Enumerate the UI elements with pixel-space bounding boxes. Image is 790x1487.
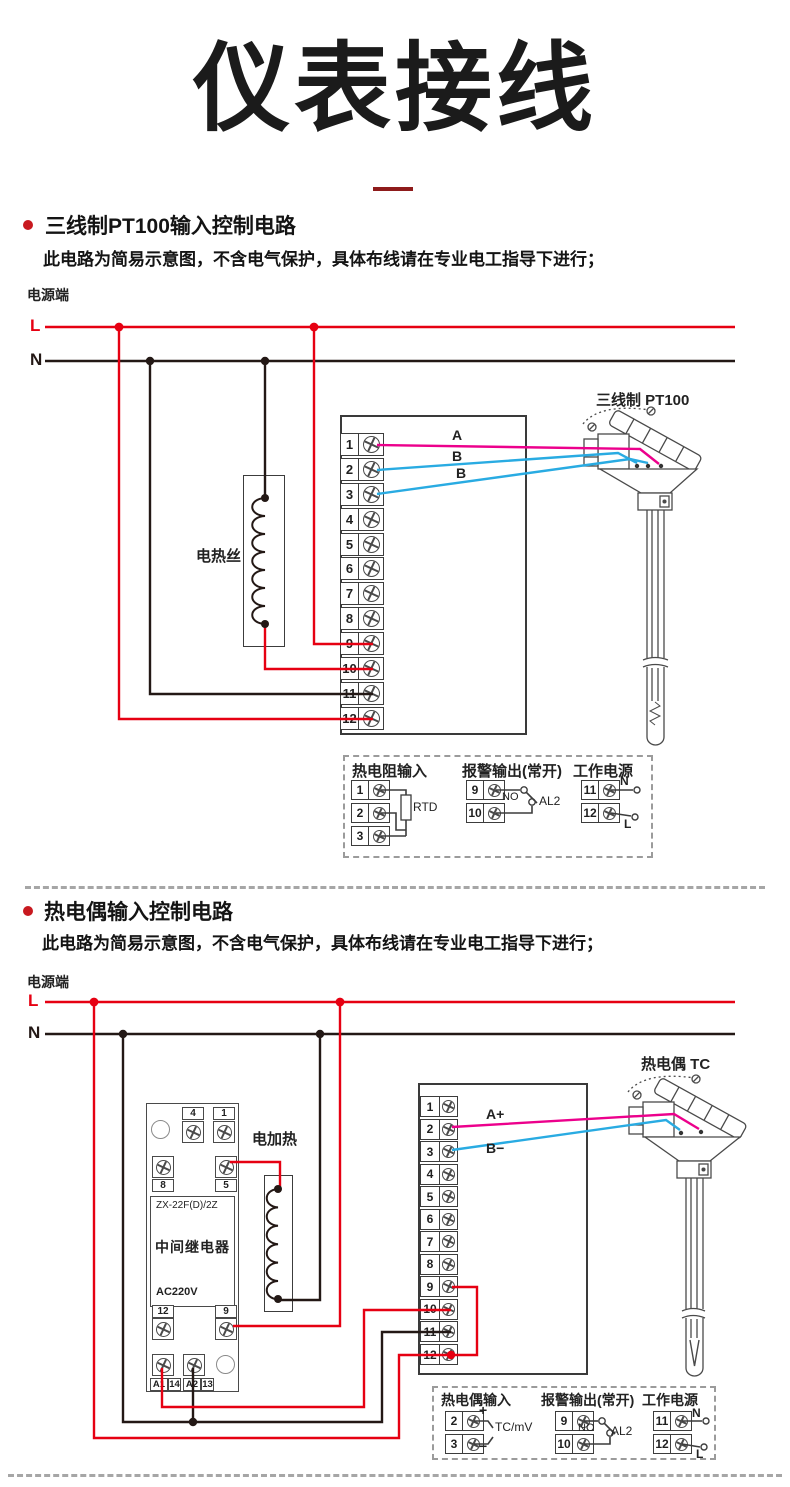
terminal-block-2: 1 2 3 4 5 [418, 1083, 588, 1375]
section1-heading: 三线制PT100输入控制电路 [45, 210, 296, 240]
screw-terminal-icon [671, 1411, 692, 1431]
terminal-row: 12 [340, 707, 384, 730]
terminal-row: 10 [420, 1299, 458, 1320]
pt100-sensor-drawing [583, 407, 702, 745]
relay-name: 中间继电器 [151, 1237, 234, 1257]
relay-terminal-label-4: 4 [182, 1107, 204, 1120]
screw-terminal-icon [359, 657, 384, 680]
terminal-row: 10 [340, 657, 384, 680]
terminal-row: 12 [420, 1344, 458, 1365]
electric-heating-box [264, 1175, 293, 1312]
terminal-number: 7 [340, 582, 359, 605]
no-contact-label-2: NO [578, 1422, 595, 1434]
terminal-row: 2 [420, 1119, 458, 1140]
legend-terminal-row: 3 [351, 826, 390, 846]
terminal-number: 2 [351, 803, 369, 823]
heating-wire-box [243, 475, 285, 647]
legend2-alarm-title: 报警输出(常开) [541, 1390, 634, 1410]
terminal-row: 7 [340, 582, 384, 605]
terminal-row: 1 [340, 433, 384, 456]
electric-heating-label: 电加热 [252, 1128, 297, 1149]
legend-terminal-row: 12 [653, 1434, 692, 1454]
terminal-row: 8 [340, 607, 384, 630]
legend1-rtd-terminals: 1 2 3 [351, 780, 390, 846]
terminal-number: 11 [340, 682, 359, 705]
title-underline [373, 187, 413, 191]
tc-mv-label: TC/mV [495, 1420, 532, 1434]
terminal-rows-1: 1 2 3 4 5 [340, 433, 384, 730]
legend1-alarm-title: 报警输出(常开) [462, 760, 562, 781]
legend2-power-terminals: 11 12 [653, 1411, 692, 1454]
terminal-number: 3 [445, 1434, 463, 1454]
terminal-number: 2 [445, 1411, 463, 1431]
legend2-power-title: 工作电源 [642, 1390, 698, 1410]
relay-screw-8 [152, 1156, 174, 1178]
section-divider [25, 886, 765, 889]
terminal-row: 3 [420, 1141, 458, 1162]
terminal-number: 2 [340, 458, 359, 481]
relay-mount-hole-2 [216, 1355, 235, 1374]
terminal-row: 11 [420, 1321, 458, 1342]
legend1-rtd-title: 热电阻输入 [352, 760, 427, 781]
al2-label-2: AL2 [611, 1424, 632, 1438]
relay-terminal-label-5: 5 [215, 1179, 237, 1192]
relay-terminal-label-8: 8 [152, 1179, 174, 1192]
screw-terminal-icon [440, 1299, 458, 1320]
relay-screw-a2 [183, 1354, 205, 1376]
rtd-label: RTD [413, 800, 437, 814]
tc-sensor-drawing [628, 1075, 747, 1376]
screw-terminal-icon [359, 607, 384, 630]
screw-terminal-icon [440, 1344, 458, 1365]
terminal-number: 12 [420, 1344, 440, 1365]
screw-terminal-icon [359, 458, 384, 481]
terminal-number: 10 [340, 657, 359, 680]
instrument-wiring-page: 仪表接线 三线制PT100输入控制电路 此电路为简易示意图，不含电气保护，具体布… [0, 0, 790, 1487]
relay-terminal-label-a2: A2 [183, 1378, 201, 1391]
legend2-l-label: L [696, 1447, 703, 1461]
screw-terminal-icon [440, 1209, 458, 1230]
legend-terminal-row: 1 [351, 780, 390, 800]
relay-terminal-label-a1: A1 [150, 1378, 168, 1391]
tc-sensor-label: 热电偶 TC [641, 1053, 710, 1074]
legend1-power-terminals: 11 12 [581, 780, 620, 823]
terminal-number: 9 [340, 632, 359, 655]
relay-screw-a1 [152, 1354, 174, 1376]
terminal-row: 1 [420, 1096, 458, 1117]
terminal-number: 1 [420, 1096, 440, 1117]
bottom-divider [8, 1474, 782, 1477]
screw-terminal-icon [599, 803, 620, 823]
al2-label-1: AL2 [539, 794, 560, 808]
terminal-number: 10 [420, 1299, 440, 1320]
screw-terminal-icon [440, 1164, 458, 1185]
wire-a-label: A [452, 427, 462, 443]
terminal-number: 5 [420, 1186, 440, 1207]
terminal-number: 9 [466, 780, 484, 800]
screw-terminal-icon [359, 707, 384, 730]
terminal-number: 6 [420, 1209, 440, 1230]
terminal-number: 3 [340, 483, 359, 506]
section2-line-l-label: L [28, 991, 38, 1011]
terminal-row: 7 [420, 1231, 458, 1252]
terminal-rows-2: 1 2 3 4 5 [420, 1096, 458, 1365]
screw-terminal-icon [440, 1141, 458, 1162]
terminal-row: 2 [340, 458, 384, 481]
relay-screw-5 [215, 1156, 237, 1178]
screw-terminal-icon [359, 557, 384, 580]
relay-screw-12 [152, 1318, 174, 1340]
terminal-number: 9 [420, 1276, 440, 1297]
screw-terminal-icon [359, 508, 384, 531]
screw-terminal-icon [359, 632, 384, 655]
legend-terminal-row: 11 [653, 1411, 692, 1431]
legend-terminal-row: 9 [466, 780, 505, 800]
legend1-alarm-terminals: 9 10 [466, 780, 505, 823]
wire-b1-label: B [452, 448, 462, 464]
terminal-number: 1 [340, 433, 359, 456]
page-title: 仪表接线 [0, 36, 790, 143]
terminal-number: 3 [420, 1141, 440, 1162]
terminal-row: 4 [340, 508, 384, 531]
screw-terminal-icon [671, 1434, 692, 1454]
terminal-row: 11 [340, 682, 384, 705]
screw-terminal-icon [359, 582, 384, 605]
terminal-number: 8 [420, 1254, 440, 1275]
relay-body: ZX-22F(D)/2Z 中间继电器 AC220V [150, 1196, 235, 1307]
terminal-row: 3 [340, 483, 384, 506]
relay-screw-9 [215, 1318, 237, 1340]
section2-power-terminal-label: 电源端 [27, 972, 69, 992]
terminal-row: 9 [340, 632, 384, 655]
terminal-row: 4 [420, 1164, 458, 1185]
screw-terminal-icon [573, 1434, 594, 1454]
terminal-number: 10 [466, 803, 484, 823]
screw-terminal-icon [359, 433, 384, 456]
wire-a-plus-label: A+ [486, 1106, 504, 1122]
screw-terminal-icon [599, 780, 620, 800]
terminal-number: 12 [653, 1434, 671, 1454]
section1-line-n-label: N [30, 350, 42, 370]
wire-b-minus-label: B− [486, 1140, 504, 1156]
section1-bullet-icon [23, 220, 33, 230]
intermediate-relay: 4 1 8 5 ZX-22F(D)/2Z 中间继电器 AC220V 12 9 A… [146, 1103, 239, 1392]
screw-terminal-icon [359, 682, 384, 705]
relay-terminal-label-9: 9 [215, 1305, 237, 1318]
no-contact-label-1: NO [502, 791, 519, 803]
terminal-number: 12 [581, 803, 599, 823]
screw-terminal-icon [440, 1231, 458, 1252]
screw-terminal-icon [440, 1119, 458, 1140]
terminal-number: 7 [420, 1231, 440, 1252]
section2-line-n-label: N [28, 1023, 40, 1043]
screw-terminal-icon [440, 1096, 458, 1117]
terminal-number: 4 [420, 1164, 440, 1185]
screw-terminal-icon [440, 1254, 458, 1275]
terminal-number: 11 [420, 1321, 440, 1342]
terminal-number: 1 [351, 780, 369, 800]
section2-bullet-icon [23, 906, 33, 916]
legend-terminal-row: 10 [466, 803, 505, 823]
section1-power-terminal-label: 电源端 [27, 285, 69, 305]
legend1-l-label: L [624, 817, 631, 831]
terminal-row: 5 [420, 1186, 458, 1207]
terminal-number: 11 [653, 1411, 671, 1431]
relay-terminal-label-12: 12 [152, 1305, 174, 1318]
legend-terminal-row: 10 [555, 1434, 594, 1454]
screw-terminal-icon [484, 803, 505, 823]
legend-terminal-row: 11 [581, 780, 620, 800]
screw-terminal-icon [440, 1321, 458, 1342]
screw-terminal-icon [369, 826, 390, 846]
terminal-number: 10 [555, 1434, 573, 1454]
terminal-row: 6 [340, 557, 384, 580]
section1-note: 此电路为简易示意图，不含电气保护，具体布线请在专业电工指导下进行； [43, 245, 604, 270]
terminal-number: 12 [340, 707, 359, 730]
screw-terminal-icon [440, 1186, 458, 1207]
terminal-number: 3 [351, 826, 369, 846]
terminal-number: 8 [340, 607, 359, 630]
terminal-number: 11 [581, 780, 599, 800]
legend-terminal-row: 12 [581, 803, 620, 823]
screw-terminal-icon [440, 1276, 458, 1297]
screw-terminal-icon [359, 483, 384, 506]
section2-heading: 热电偶输入控制电路 [44, 896, 233, 926]
terminal-number: 4 [340, 508, 359, 531]
screw-terminal-icon [359, 533, 384, 556]
legend-terminal-row: 2 [351, 803, 390, 823]
relay-terminal-label-13: 13 [201, 1378, 214, 1391]
legend2-tc-title: 热电偶输入 [441, 1390, 511, 1410]
legend2-n-label: N [692, 1406, 701, 1420]
relay-screw-1 [213, 1121, 235, 1143]
terminal-number: 2 [420, 1119, 440, 1140]
relay-model: ZX-22F(D)/2Z [156, 1200, 218, 1211]
relay-voltage: AC220V [156, 1286, 198, 1298]
legend1-n-label: N [620, 774, 629, 788]
section2-note: 此电路为简易示意图，不含电气保护，具体布线请在专业电工指导下进行； [42, 929, 603, 954]
terminal-block-1: 1 2 3 4 5 [340, 415, 527, 735]
screw-terminal-icon [369, 803, 390, 823]
relay-terminal-label-14: 14 [168, 1378, 181, 1391]
terminal-row: 5 [340, 533, 384, 556]
terminal-number: 5 [340, 533, 359, 556]
terminal-row: 6 [420, 1209, 458, 1230]
pt100-sensor-label: 三线制 PT100 [596, 389, 689, 410]
terminal-number: 9 [555, 1411, 573, 1431]
relay-terminal-label-1: 1 [213, 1107, 235, 1120]
terminal-number: 6 [340, 557, 359, 580]
tc-minus-label: − [479, 1438, 487, 1454]
terminal-row: 9 [420, 1276, 458, 1297]
tc-plus-label: + [479, 1402, 487, 1418]
wire-b2-label: B [456, 465, 466, 481]
section1-line-l-label: L [30, 316, 40, 336]
relay-mount-hole [151, 1120, 170, 1139]
heating-wire-label: 电热丝 [196, 545, 241, 566]
terminal-row: 8 [420, 1254, 458, 1275]
relay-screw-4 [182, 1121, 204, 1143]
screw-terminal-icon [369, 780, 390, 800]
